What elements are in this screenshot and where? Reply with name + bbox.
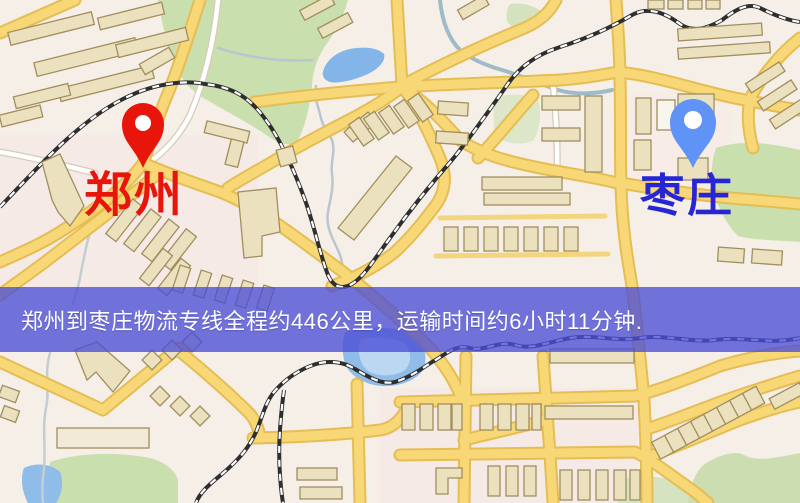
route-info-banner: 郑州到枣庄物流专线全程约446公里，运输时间约6小时11分钟.: [0, 287, 800, 352]
blue-pin-hole: [684, 111, 702, 129]
destination-city-label: 枣庄: [640, 174, 734, 219]
map-viewport[interactable]: 郑州到枣庄物流专线全程约446公里，运输时间约6小时11分钟. 郑州 枣庄: [0, 0, 800, 503]
red-pin-hole: [135, 115, 151, 131]
route-info-text: 郑州到枣庄物流专线全程约446公里，运输时间约6小时11分钟.: [0, 304, 642, 336]
origin-city-label: 郑州: [84, 172, 184, 220]
map-canvas: [0, 0, 800, 503]
